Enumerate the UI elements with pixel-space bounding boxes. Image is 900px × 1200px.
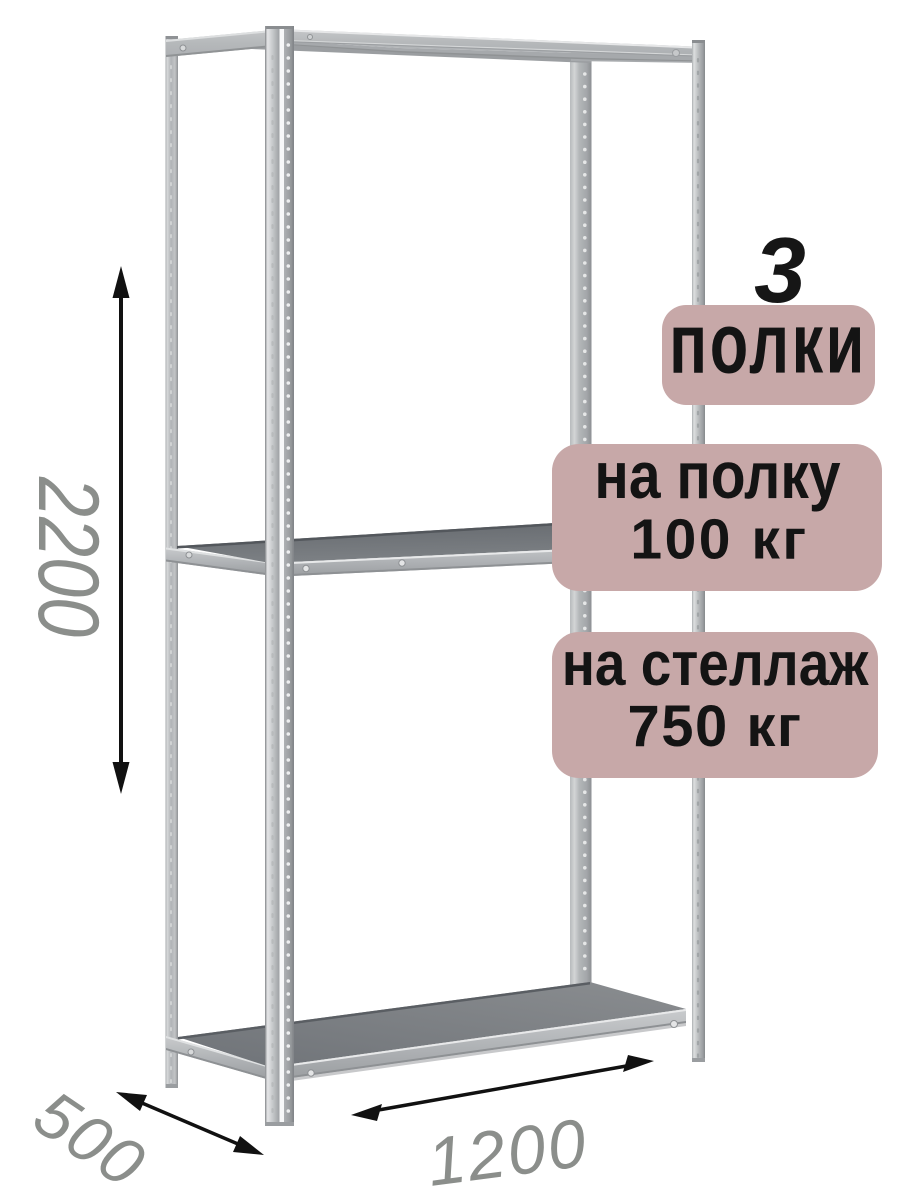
svg-text:2200: 2200: [20, 476, 117, 637]
svg-text:на стеллаж: на стеллаж: [562, 630, 870, 699]
svg-text:100 кг: 100 кг: [630, 508, 808, 572]
svg-text:на полку: на полку: [594, 439, 840, 513]
svg-text:750 кг: 750 кг: [627, 694, 802, 759]
svg-text:полки: полки: [669, 295, 867, 390]
